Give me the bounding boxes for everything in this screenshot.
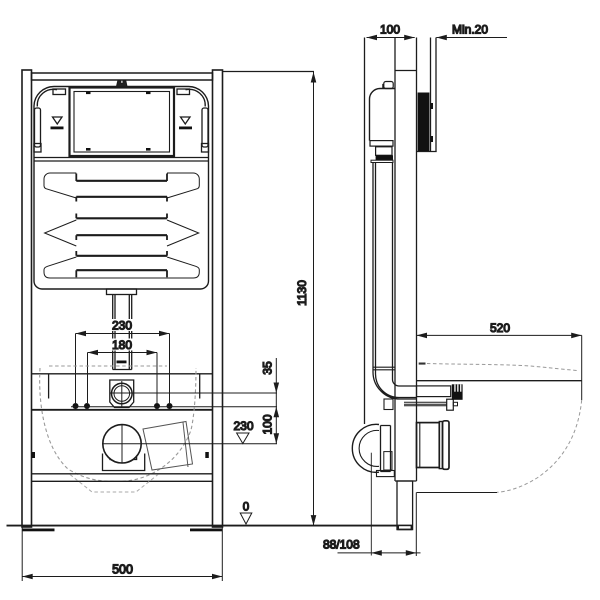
svg-text:100: 100 (261, 414, 275, 434)
svg-text:0: 0 (243, 502, 249, 514)
svg-text:88/108: 88/108 (323, 538, 360, 552)
svg-text:Min.20: Min.20 (452, 23, 488, 37)
svg-text:230: 230 (112, 319, 132, 333)
svg-text:500: 500 (112, 563, 133, 577)
svg-text:180: 180 (112, 338, 132, 352)
svg-text:100: 100 (380, 23, 400, 37)
svg-text:520: 520 (490, 321, 510, 335)
svg-text:230: 230 (233, 419, 253, 433)
svg-text:35: 35 (261, 361, 275, 375)
svg-text:1130: 1130 (295, 280, 309, 306)
